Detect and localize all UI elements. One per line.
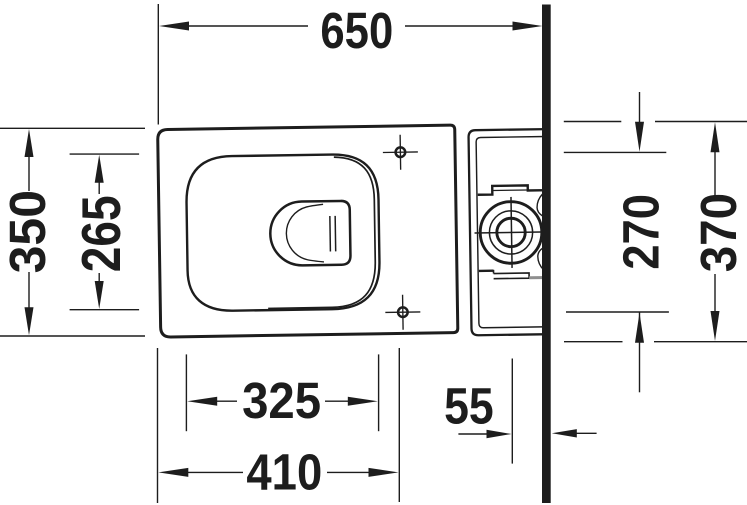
svg-text:265: 265 — [70, 195, 132, 272]
svg-text:55: 55 — [444, 378, 494, 436]
svg-text:270: 270 — [613, 194, 670, 270]
svg-text:350: 350 — [0, 190, 56, 273]
svg-text:410: 410 — [246, 444, 322, 501]
svg-text:650: 650 — [320, 3, 393, 60]
svg-text:325: 325 — [242, 372, 321, 429]
svg-text:370: 370 — [690, 193, 747, 272]
